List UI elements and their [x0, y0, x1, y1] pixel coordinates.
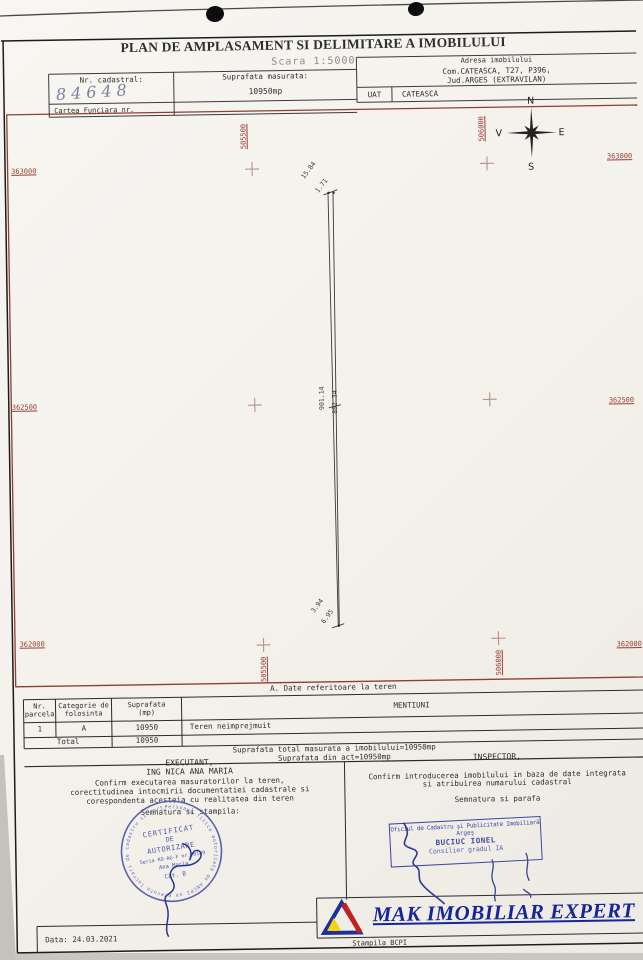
parcel-dim-side-left: 901.14 — [319, 386, 327, 410]
compass-west-label: V — [495, 128, 502, 139]
uat-label: UAT — [357, 91, 392, 100]
round-stamp-line2: DE — [165, 835, 174, 844]
cartea-funciara-label: Cartea Funciara nr. — [54, 107, 134, 116]
total-value: 10950 — [112, 736, 182, 745]
inspector-signature-squiggle — [403, 822, 444, 905]
scanned-cadastral-plan: PLAN DE AMPLASAMENT SI DELIMITARE A IMOB… — [0, 0, 643, 960]
scan-edge-line — [0, 0, 643, 40]
cell-suprafata: 10950 — [112, 723, 182, 732]
grid-label-left-363000: 363000 — [11, 168, 36, 176]
col-header-nr-parcela: Nr. parcela — [23, 703, 55, 719]
cell-nr-parcela: 1 — [24, 725, 56, 734]
compass-east-label: E — [558, 127, 564, 138]
compass-rose: N E S V — [494, 91, 571, 176]
grid-label-bottom-506000: 506000 — [496, 650, 504, 675]
mak-logo-triangle — [320, 899, 365, 938]
pen-mark-1 — [492, 859, 496, 901]
uat-value: CATEASCA — [402, 90, 438, 99]
document-content: PLAN DE AMPLASAMENT SI DELIMITARE A IMOB… — [0, 0, 643, 960]
grid-label-top-506000: 506000 — [478, 116, 486, 141]
round-stamp-line6: Cat. B — [164, 870, 187, 880]
round-authorization-stamp: Persoana fizica autorizata de ANCPI sa e… — [103, 783, 255, 951]
total-label: Total — [24, 737, 112, 747]
grid-label-right-362000: 362000 — [617, 641, 642, 649]
parcel-dim-side-right: 892.34 — [332, 390, 340, 414]
mak-logo-text: MAK IMOBILIAR EXPERT — [359, 899, 643, 927]
grid-label-right-363000: 363000 — [607, 153, 632, 161]
grid-label-bottom-505500: 505500 — [261, 657, 269, 682]
grid-label-top-505500: 505500 — [240, 124, 248, 149]
grid-label-left-362000: 362000 — [20, 641, 45, 649]
col-header-categorie: Categorie de folosinta — [55, 702, 111, 718]
cell-mentiuni: Teren neimprejmuit — [190, 722, 271, 732]
grid-label-left-362500: 362500 — [12, 404, 37, 412]
grid-label-right-362500: 362500 — [609, 397, 634, 405]
compass-south-label: S — [528, 162, 534, 173]
pen-mark-2 — [523, 853, 531, 898]
compass-north-label: N — [527, 96, 534, 107]
footer-stampila-bcpi: Stampila BCPI — [352, 940, 407, 949]
footer-date: Data: 24.03.2021 — [45, 935, 117, 944]
col-header-suprafata: Suprafata (mp) — [111, 701, 181, 717]
cell-categorie: A — [56, 724, 112, 733]
